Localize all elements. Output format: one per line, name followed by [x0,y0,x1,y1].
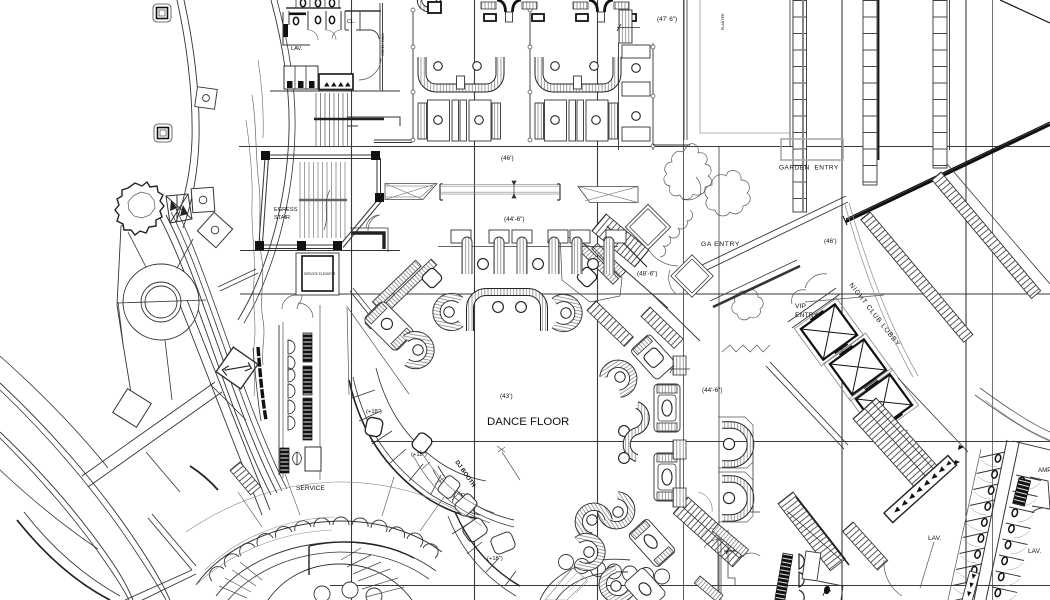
svg-text:(46'): (46') [824,238,837,245]
svg-text:CL.: CL. [347,19,356,25]
svg-text:(47' 6"): (47' 6") [657,16,677,23]
svg-text:GREEN WALL: GREEN WALL [381,33,385,56]
svg-text:EGRESS: EGRESS [274,207,298,213]
svg-text:(+18"): (+18") [487,556,503,562]
svg-text:(44'-6"): (44'-6") [702,387,723,394]
svg-text:(43'): (43') [500,393,513,400]
svg-text:(44'-6"): (44'-6") [504,216,525,223]
svg-text:GA ENTRY: GA ENTRY [701,241,740,248]
svg-text:(+18"): (+18") [366,409,382,415]
svg-text:SERVICE: SERVICE [296,485,325,492]
svg-text:(48'-6"): (48'-6") [637,271,658,278]
svg-text:LAV.: LAV. [291,46,303,52]
svg-text:STAIR: STAIR [274,215,290,221]
svg-text:(46'): (46') [501,155,514,162]
svg-text:LAV.: LAV. [928,535,941,542]
svg-text:LAV.: LAV. [1028,548,1041,555]
svg-text:PLANTER: PLANTER [721,13,725,30]
svg-text:SERVICE ELEVATOR: SERVICE ELEVATOR [304,272,336,276]
svg-text:GARDEN ENTRY: GARDEN ENTRY [779,165,839,172]
svg-text:DANCE FLOOR: DANCE FLOOR [487,416,569,428]
svg-text:AMP: AMP [1038,467,1050,474]
svg-text:VIP: VIP [795,303,806,310]
